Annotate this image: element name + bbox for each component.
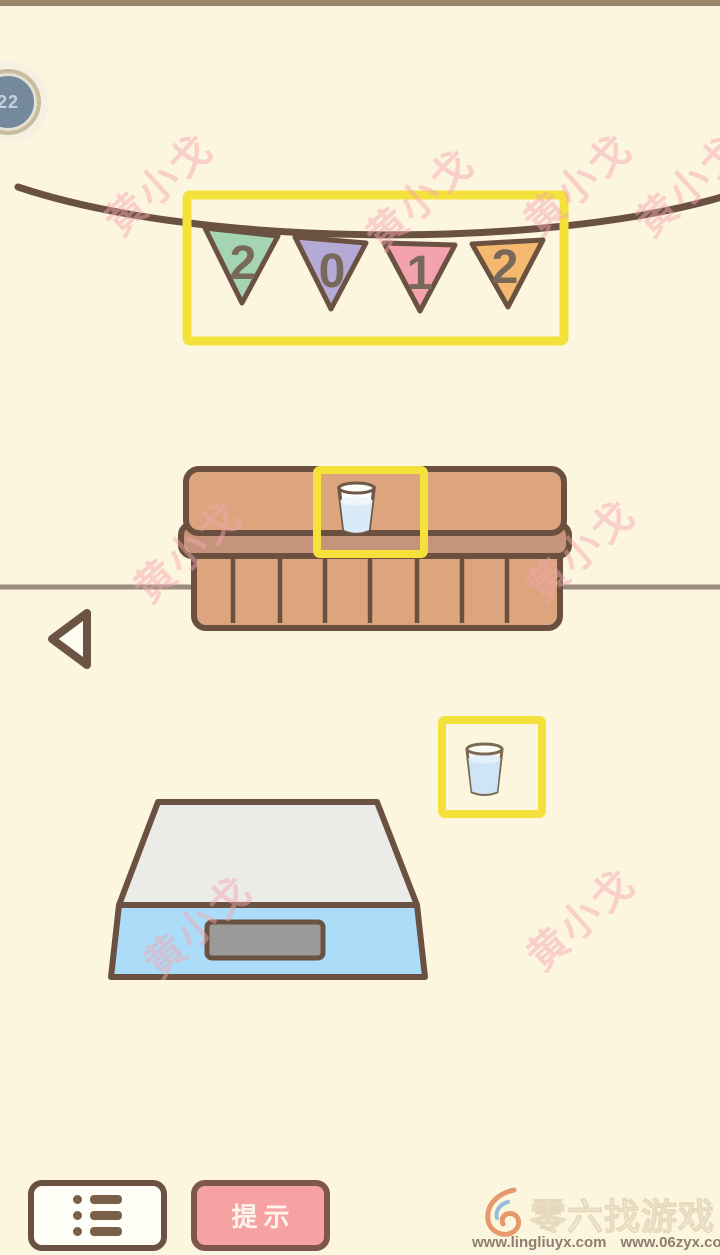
menu-button[interactable]	[28, 1180, 167, 1251]
flag-digit-4: 2	[492, 241, 519, 294]
scale-top-surface[interactable]	[119, 802, 417, 905]
site-name: 零六找游戏	[530, 1188, 715, 1240]
site-watermark: 零六找游戏 www.lingliuyx.com www.06zyx.com	[470, 1178, 720, 1254]
site-url-left: www.lingliuyx.com	[472, 1234, 606, 1251]
flag-digit-3: 1	[407, 247, 434, 300]
site-logo-icon	[478, 1184, 528, 1240]
hint-button-label: 提示	[231, 1197, 295, 1234]
milk-glass[interactable]	[339, 483, 374, 533]
water-surface	[469, 755, 501, 764]
flag-digit-2: 0	[319, 245, 346, 298]
milk-liquid	[341, 501, 373, 533]
scale-display	[207, 922, 323, 958]
site-url-right: www.06zyx.com	[620, 1234, 720, 1251]
water-liquid	[469, 759, 501, 794]
water-glass-rim	[467, 744, 502, 754]
milk-surface	[341, 497, 373, 506]
game-screen: 22 2 0 1 2	[0, 0, 720, 1255]
milk-glass-rim	[339, 483, 374, 493]
scene-canvas: 2 0 1 2	[0, 0, 720, 1255]
weighing-scale[interactable]	[111, 802, 425, 977]
flag-digit-1: 2	[230, 237, 257, 290]
water-glass[interactable]	[467, 744, 502, 795]
hint-button[interactable]: 提示	[191, 1180, 330, 1251]
cabinet-counter-top[interactable]	[186, 469, 564, 533]
list-icon	[73, 1195, 122, 1236]
back-button[interactable]	[52, 613, 87, 665]
